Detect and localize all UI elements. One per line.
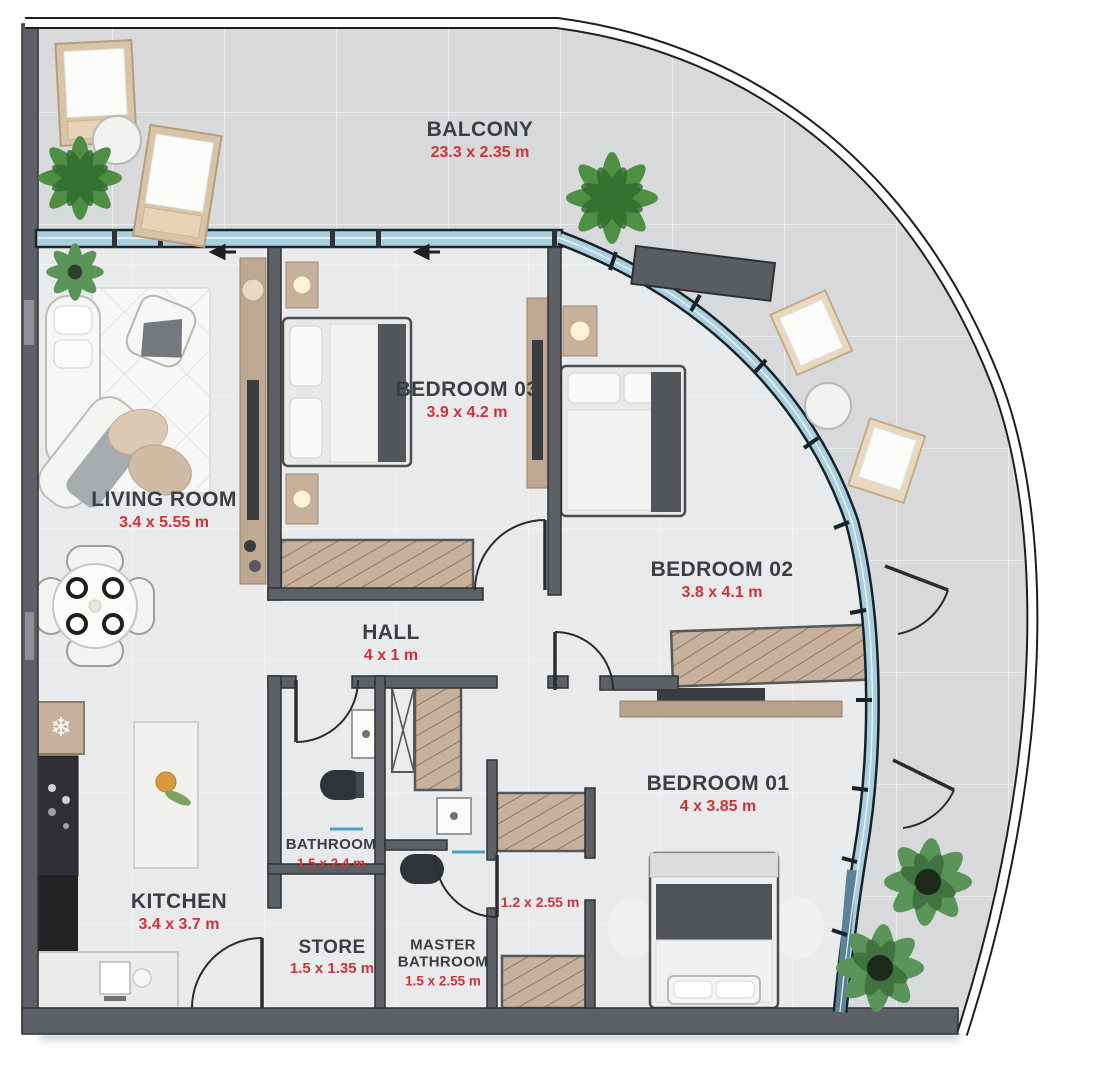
nightstand xyxy=(286,474,318,524)
wall-bath-store xyxy=(268,864,385,874)
wall-hall-bed01 xyxy=(548,676,568,688)
bedroom-01-bed xyxy=(650,853,778,1008)
wall-hall-mid xyxy=(352,676,497,688)
kitchen-island xyxy=(134,722,198,868)
wardrobe xyxy=(497,793,587,851)
master-bathroom-sink xyxy=(437,798,471,834)
console-shelf xyxy=(620,701,842,717)
bedroom-03-wardrobe xyxy=(281,540,473,590)
wall-left xyxy=(22,24,38,1032)
wall-dressing-right2 xyxy=(585,900,595,1008)
wall-bath-mid xyxy=(375,676,385,1008)
wardrobe xyxy=(502,956,588,1008)
wall-dressing-right xyxy=(585,788,595,858)
bedroom-02-tv-console xyxy=(527,298,549,488)
fern-plant xyxy=(38,136,122,220)
nightstand xyxy=(286,262,318,308)
wall-dressing-left2 xyxy=(487,908,497,1008)
kitchen-counter-stove xyxy=(38,756,78,956)
wall-bed03-hall xyxy=(268,588,483,600)
wall-recess xyxy=(25,612,34,660)
wall-living-bed03 xyxy=(268,240,281,600)
living-room-tv-console xyxy=(240,258,266,584)
wall-bed03-bed02 xyxy=(548,240,561,595)
bathroom-toilet xyxy=(320,770,364,800)
wall-bottom xyxy=(22,1008,958,1034)
floor-plan-drawing: ❄ xyxy=(0,0,1093,1080)
wall-recess xyxy=(24,300,34,345)
hall-closet xyxy=(415,686,461,790)
snowflake-icon: ❄ xyxy=(50,712,72,742)
wall-dressing-left xyxy=(487,760,497,860)
fern-plant xyxy=(566,152,658,244)
fridge: ❄ xyxy=(38,702,84,754)
bedroom-03-bed xyxy=(283,318,411,466)
side-rug xyxy=(772,896,824,960)
bedroom-02-bed xyxy=(561,366,685,516)
floor-plan-canvas: ❄ xyxy=(0,0,1093,1080)
balcony-round-table xyxy=(805,383,851,429)
bedroom-02-wardrobe xyxy=(671,625,873,687)
wall-masterbath-top xyxy=(385,840,447,850)
nightstand xyxy=(563,306,597,356)
kitchen-lower-counter xyxy=(38,952,178,1008)
potted-plant xyxy=(46,243,104,301)
hall-shelf-x xyxy=(392,688,414,772)
glass-wall-top xyxy=(36,229,562,248)
